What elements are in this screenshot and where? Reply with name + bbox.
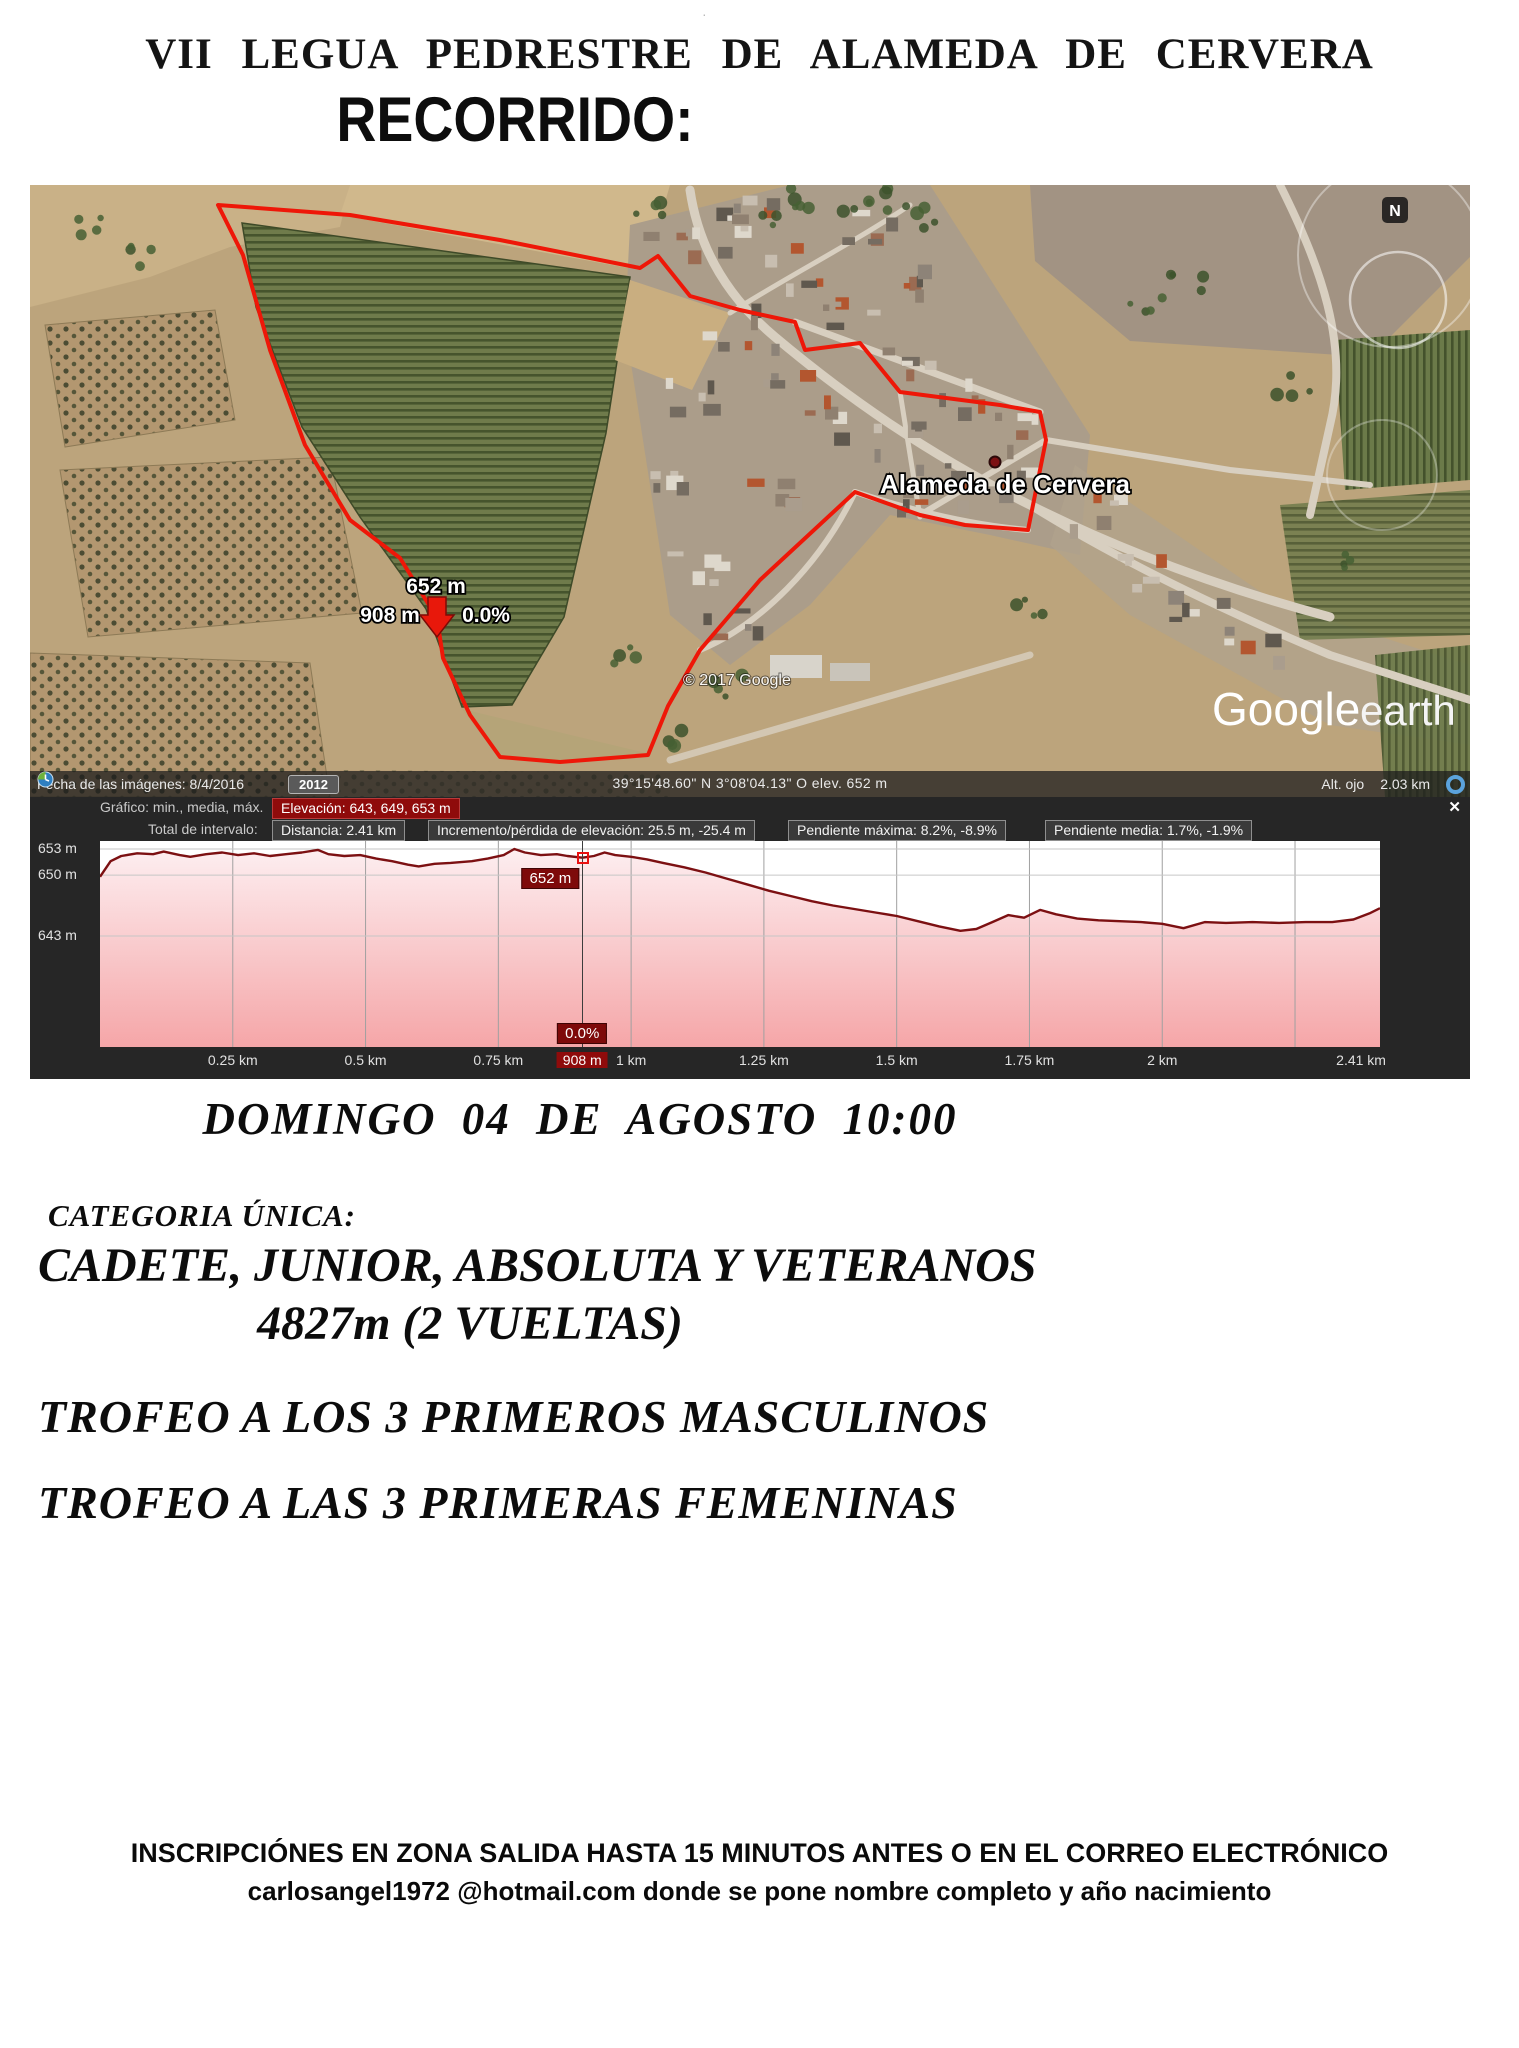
inscription-line-1: INSCRIPCIÓNES EN ZONA SALIDA HASTA 15 MI… (0, 1838, 1519, 1869)
date-line: DOMINGO 04 DE AGOSTO 10:00 (0, 1093, 1160, 1145)
poster-page: { "poster": { "title": "VII LEGUA PEDRES… (0, 0, 1519, 2048)
trophy-men-line: TROFEO A LOS 3 PRIMEROS MASCULINOS (38, 1390, 989, 1443)
warehouse-roof (830, 663, 870, 681)
elevation-header-row-1: Gráfico: min., media, máx. Elevación: 64… (30, 797, 1470, 819)
eye-altitude-label: Alt. ojo (1321, 776, 1364, 792)
poster-title: VII LEGUA PEDRESTRE DE ALAMEDA DE CERVER… (0, 30, 1519, 79)
trophy-women-line: TROFEO A LAS 3 PRIMERAS FEMENINAS (38, 1476, 958, 1529)
place-label: Alameda de Cervera (880, 469, 1131, 499)
x-axis-tick-label: 0.75 km (473, 1052, 523, 1068)
y-axis-tick-label: 653 m (38, 840, 77, 856)
distance-line: 4827m (2 VUELTAS) (0, 1296, 940, 1351)
x-axis-tick-label: 0.25 km (208, 1052, 258, 1068)
inscription-line-2: carlosangel1972 @hotmail.com donde se po… (0, 1876, 1519, 1907)
svg-text:N: N (1389, 203, 1401, 220)
marker-distance-box: 908 m (557, 1052, 608, 1068)
poster-subtitle: RECORRIDO: (62, 84, 968, 156)
marker-elevation-box: 652 m (522, 868, 580, 889)
x-axis: 0.25 km0.5 km0.75 km1 km1.25 km1.5 km1.7… (100, 1047, 1380, 1075)
elevation-profile-svg (100, 841, 1380, 1047)
y-axis-tick-label: 643 m (38, 927, 77, 943)
route-marker-distance-label: 908 m (360, 604, 420, 627)
x-axis-tick-label: 1.5 km (876, 1052, 918, 1068)
stat-distance: Distancia: 2.41 km (272, 820, 405, 841)
map-canvas: N Alameda de Cervera 652 m 908 m 0.0% © … (30, 185, 1470, 797)
svg-text:Google: Google (1212, 683, 1360, 735)
svg-text:earth: earth (1360, 687, 1456, 734)
stat-max-slope: Pendiente máxima: 8.2%, -8.9% (788, 820, 1006, 841)
year-button[interactable]: 2012 (288, 775, 339, 794)
elevation-plot[interactable]: 652 m 0.0% (100, 841, 1380, 1047)
x-axis-tick-label: 2.41 km (1336, 1052, 1386, 1068)
interval-label: Total de intervalo: (148, 820, 258, 839)
elevation-panel: ✕ Gráfico: min., media, máx. Elevación: … (30, 797, 1470, 1079)
eye-altitude-value: 2.03 km (1380, 776, 1430, 792)
place-marker-dot[interactable] (990, 457, 1001, 468)
x-axis-tick-label: 2 km (1147, 1052, 1177, 1068)
stat-avg-slope: Pendiente media: 1.7%, -1.9% (1045, 820, 1252, 841)
north-indicator[interactable]: N (1382, 197, 1408, 223)
imagery-date-label: Fecha de las imágenes: 8/4/2016 (37, 776, 244, 792)
category-line: CADETE, JUNIOR, ABSOLUTA Y VETERANOS (38, 1238, 1036, 1293)
route-marker-elevation-label: 652 m (406, 575, 466, 598)
x-axis-tick-label: 1.25 km (739, 1052, 789, 1068)
route-marker-slope-label: 0.0% (462, 604, 510, 627)
google-earth-map: N Alameda de Cervera 652 m 908 m 0.0% © … (30, 185, 1470, 797)
x-axis-tick-label: 1 km (616, 1052, 646, 1068)
coordinates-readout: 39°15'48.60" N 3°08'04.13" O elev. 652 m (613, 775, 888, 791)
google-earth-logo: Google earth (1212, 683, 1456, 735)
marker-square (577, 852, 589, 864)
elevation-badge: Elevación: 643, 649, 653 m (272, 798, 460, 819)
stat-elevation-gain: Incremento/pérdida de elevación: 25.5 m,… (428, 820, 755, 841)
x-axis-tick-label: 1.75 km (1005, 1052, 1055, 1068)
elevation-chart[interactable]: 653 m650 m643 m 652 m 0.0% 0.25 km0.5 km… (30, 841, 1470, 1075)
marker-slope-box: 0.0% (557, 1023, 607, 1044)
marker-line (582, 841, 583, 1047)
elevation-header-row-2: Total de intervalo: Distancia: 2.41 km I… (30, 819, 1470, 841)
status-bar: Fecha de las imágenes: 8/4/2016 2012 39°… (30, 771, 1470, 797)
graph-label: Gráfico: min., media, máx. (100, 798, 263, 817)
stray-mark: · (702, 6, 707, 22)
category-label: CATEGORIA ÚNICA: (48, 1198, 356, 1234)
eye-altitude-icon (1446, 775, 1465, 794)
x-axis-tick-label: 0.5 km (345, 1052, 387, 1068)
map-copyright: © 2017 Google (683, 672, 791, 689)
y-axis-tick-label: 650 m (38, 866, 77, 882)
